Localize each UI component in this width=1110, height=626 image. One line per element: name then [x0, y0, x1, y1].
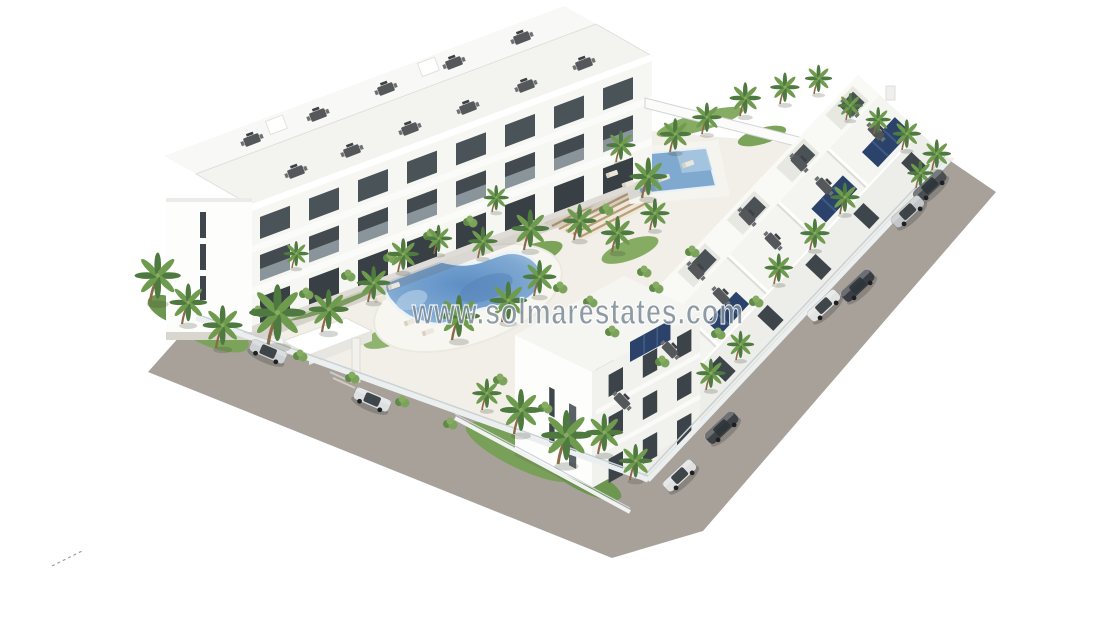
watermark: www.solmarestates.com	[411, 291, 744, 332]
render-image: www.solmarestates.com	[0, 0, 1110, 626]
chimney	[886, 86, 895, 100]
apartment-complex-render: www.solmarestates.com	[0, 0, 1110, 626]
